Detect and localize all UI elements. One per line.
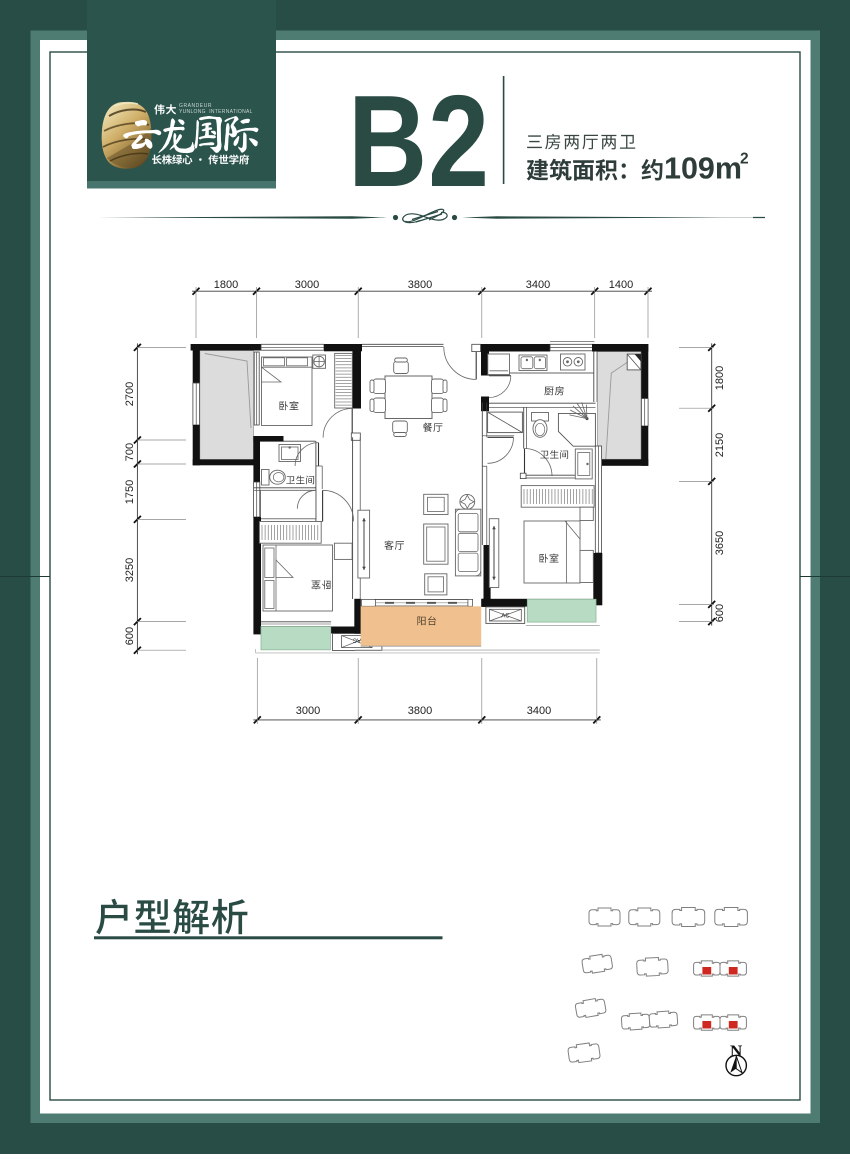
svg-text:YUNLONG INTERNATIONAL: YUNLONG INTERNATIONAL (179, 109, 253, 115)
svg-text:700: 700 (124, 443, 136, 461)
svg-text:1800: 1800 (714, 366, 726, 390)
svg-text:1750: 1750 (124, 480, 136, 504)
svg-text:2: 2 (740, 151, 749, 168)
svg-text:3650: 3650 (714, 531, 726, 555)
svg-text:109m: 109m (664, 152, 742, 186)
svg-text:1800: 1800 (214, 279, 238, 291)
svg-text:3250: 3250 (124, 558, 136, 582)
svg-text:3800: 3800 (408, 705, 432, 717)
svg-text:2700: 2700 (124, 382, 136, 406)
svg-text:600: 600 (714, 604, 726, 622)
svg-text:AC: AC (352, 637, 361, 643)
svg-text:3400: 3400 (526, 279, 550, 291)
svg-text:AC: AC (501, 614, 510, 620)
svg-text:600: 600 (124, 627, 136, 645)
svg-text:3000: 3000 (295, 279, 319, 291)
svg-text:1400: 1400 (609, 279, 633, 291)
svg-text:2150: 2150 (714, 433, 726, 457)
svg-text:3800: 3800 (408, 279, 432, 291)
svg-text:3400: 3400 (527, 705, 551, 717)
svg-text:3000: 3000 (296, 705, 320, 717)
svg-text:GRANDEUR: GRANDEUR (179, 103, 212, 109)
